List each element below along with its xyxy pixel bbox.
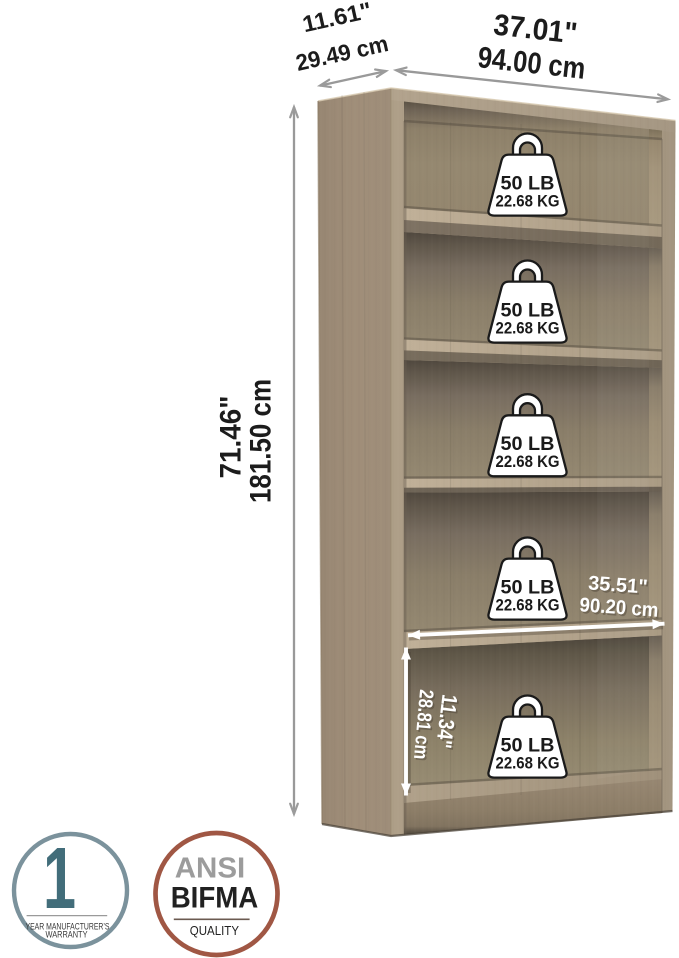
svg-text:ANSI: ANSI (175, 853, 246, 885)
svg-text:71.46": 71.46" (215, 396, 248, 479)
svg-text:WARRANTY: WARRANTY (46, 930, 88, 940)
svg-text:181.50 cm: 181.50 cm (245, 379, 278, 503)
svg-text:1: 1 (43, 830, 76, 927)
svg-text:QUALITY: QUALITY (190, 923, 239, 938)
svg-text:BIFMA: BIFMA (171, 882, 259, 915)
